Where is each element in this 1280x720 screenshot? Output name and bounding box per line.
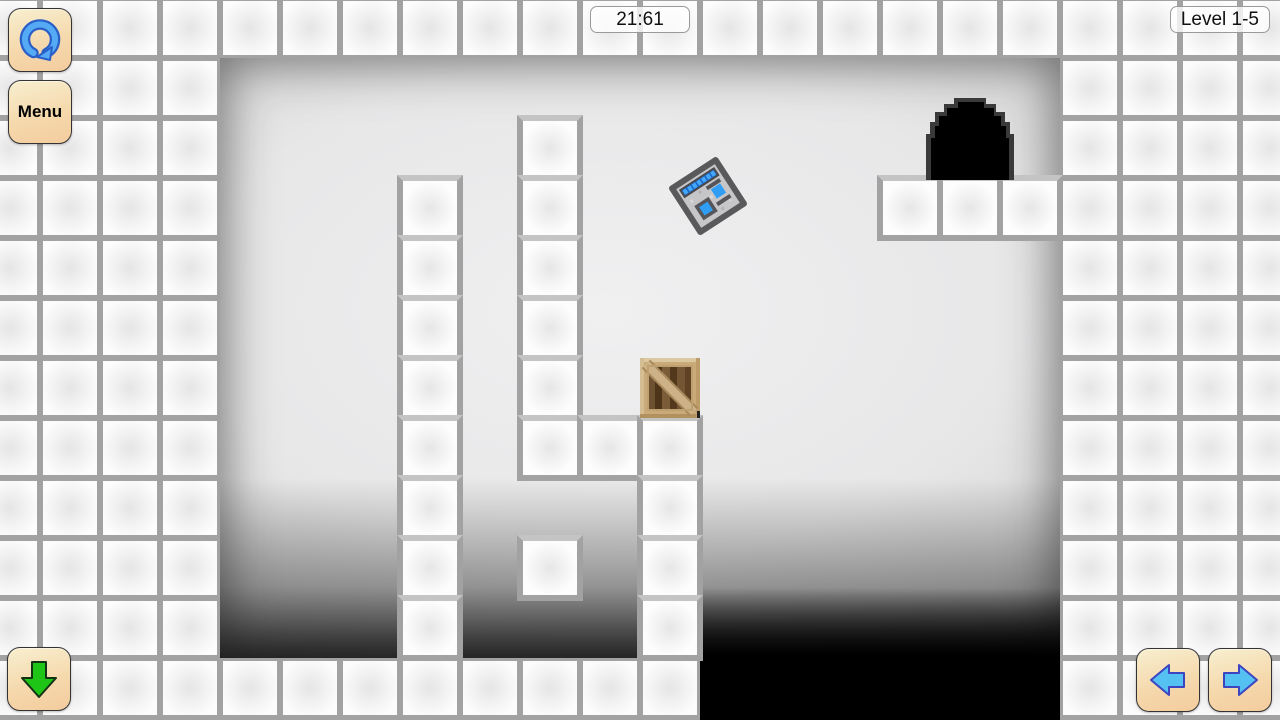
crate [640, 358, 700, 418]
wall-tile [517, 535, 583, 601]
crate-icon [640, 358, 700, 418]
wall-tile [517, 175, 583, 241]
left-arrow-icon [1146, 658, 1190, 702]
level-badge: Level 1-5 [1170, 6, 1270, 33]
wall-tile [397, 415, 463, 481]
wall-tile [517, 295, 583, 361]
exit-arch [926, 94, 1014, 180]
wall-tile [637, 535, 703, 601]
move-right-button[interactable] [1208, 648, 1272, 712]
wall-tile [517, 235, 583, 301]
wall-tile [397, 595, 463, 661]
wall-tile [517, 355, 583, 421]
wall-tile [637, 415, 703, 481]
wall-tile [637, 595, 703, 661]
wall-tile [517, 415, 583, 481]
menu-button-label: Menu [18, 102, 62, 122]
move-down-button[interactable] [7, 647, 71, 711]
wall-tile [397, 535, 463, 601]
menu-button[interactable]: Menu [8, 80, 72, 144]
wall-tile [397, 175, 463, 241]
wall-tile [397, 475, 463, 541]
timer-value: 21:61 [616, 9, 664, 30]
timer-badge: 21:61 [590, 6, 690, 33]
wall-tile [937, 175, 1003, 241]
reset-icon [16, 16, 64, 64]
right-arrow-icon [1218, 658, 1262, 702]
wall-tile [397, 295, 463, 361]
wall-tile [397, 355, 463, 421]
down-arrow-icon [17, 657, 61, 701]
move-left-button[interactable] [1136, 648, 1200, 712]
wall-tile [577, 415, 643, 481]
wall-tile [637, 475, 703, 541]
wall-tile [517, 115, 583, 181]
wall-tile [877, 175, 943, 241]
level-value: Level 1-5 [1181, 9, 1259, 30]
wall-tile [997, 175, 1063, 241]
reset-button[interactable] [8, 8, 72, 72]
exit-arch-icon [926, 94, 1014, 180]
game-screen: Menu 21:61 Level 1-5 [0, 0, 1280, 720]
wall-tile [397, 235, 463, 301]
